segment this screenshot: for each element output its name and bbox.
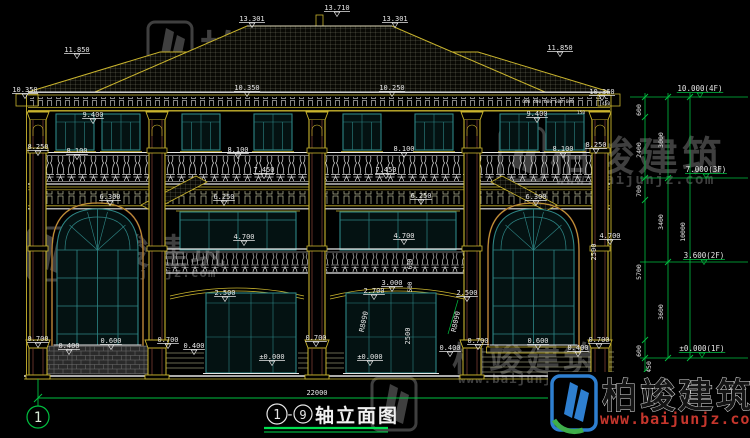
- dim-label: 0.600: [527, 337, 548, 345]
- dim-label: 2400: [635, 142, 643, 158]
- dim-label: 6.300: [525, 193, 546, 201]
- dim-label: 0.400: [567, 344, 588, 352]
- dim-label: 8.100: [393, 145, 414, 153]
- dim-label: 11.850: [64, 46, 89, 54]
- dim-label: 700: [635, 185, 643, 197]
- dim-label: 10.360: [589, 88, 614, 96]
- dim-label: 450: [602, 101, 610, 107]
- dim-label: 2500: [404, 328, 412, 345]
- page-title: 轴立面图: [315, 404, 399, 427]
- dim-label: 7.000(3F): [686, 165, 727, 174]
- dim-label: 7.450: [253, 166, 274, 174]
- roof: [28, 15, 610, 92]
- dim-label: 6.300: [99, 193, 120, 201]
- dim-label: 8.100: [66, 147, 87, 155]
- grid-bubble-left-label: 1: [34, 410, 42, 426]
- dim-label: 2500: [590, 244, 598, 261]
- dim-label: 150: [577, 110, 585, 116]
- dim-label: 3.600(2F): [684, 251, 725, 260]
- dim-label: ±0.000(1F): [679, 344, 724, 353]
- dim-label: 0.400: [439, 344, 460, 352]
- roof-finial: [316, 15, 323, 26]
- dim-label: 13.301: [382, 15, 407, 23]
- dim-label: 7.450: [375, 166, 396, 174]
- dim-label: 9.400: [526, 110, 547, 118]
- dim-label: 10.000(4F): [677, 84, 722, 93]
- dim-label: 2.500: [456, 289, 477, 297]
- dim-label: 0.400: [58, 342, 79, 350]
- dim-label: 600: [635, 345, 643, 357]
- dim-label: 10000: [679, 222, 687, 242]
- dim-label: 0.700: [588, 336, 609, 344]
- dim-label: 600 600 600 600 600: [522, 99, 574, 105]
- dim-label: 0.700: [467, 337, 488, 345]
- dim-label: 13.710: [324, 4, 349, 12]
- dim-label: 450: [645, 361, 653, 373]
- level-flag: [183, 350, 205, 355]
- dim-label: ±0.000: [259, 353, 284, 361]
- elevation-drawing: 柏竣建筑 www.baijunjz.com 柏竣建筑 www.baijunjz.…: [0, 0, 750, 438]
- dim-label: 6.250: [213, 193, 234, 201]
- dim-label: 13.301: [239, 15, 264, 23]
- dim-label: 8.250: [585, 141, 606, 149]
- dim-label: 600: [407, 258, 414, 269]
- arched-window-right: [487, 203, 581, 353]
- dim-label: 4.700: [599, 232, 620, 240]
- dim-label: 22000: [306, 389, 327, 397]
- level-flag: [324, 12, 350, 17]
- dim-label: ±0.000: [357, 353, 382, 361]
- watermark-color-bottom-right: 柏竣建筑 www.baijunjz.com: [548, 372, 750, 436]
- level-flag: [547, 52, 573, 57]
- title-dash: -: [286, 407, 294, 423]
- dim-label: 2.700: [363, 287, 384, 295]
- dim-label: 4.700: [393, 232, 414, 240]
- dim-label: 0.700: [305, 334, 326, 342]
- dim-label: 0.700: [157, 336, 178, 344]
- dim-label: 4.700: [233, 233, 254, 241]
- dim-label: 10.250: [379, 84, 404, 92]
- dim-label: 8.250: [27, 143, 48, 151]
- dim-label: 600: [635, 104, 643, 116]
- watermark-url: www.baijunjz.com: [600, 410, 750, 428]
- dim-label: R8090: [450, 310, 462, 332]
- dim-label: 0.700: [27, 335, 48, 343]
- dim-label: 3000: [657, 132, 665, 148]
- dim-label: 3.000: [381, 279, 402, 287]
- dim-label: 2.500: [214, 289, 235, 297]
- dim-label: 0.400: [183, 342, 204, 350]
- arched-window-left: [51, 203, 145, 353]
- dim-label: 9.400: [82, 111, 103, 119]
- title-block: 1 - 9 轴立面图: [264, 404, 399, 432]
- grid-bubble-left: 1: [27, 406, 49, 428]
- title-axis-end: 9: [299, 408, 306, 422]
- dim-label: 6.250: [410, 192, 431, 200]
- dim-label: 3400: [657, 214, 665, 230]
- dim-label: 8.100: [227, 146, 248, 154]
- dim-label: 500: [407, 281, 414, 292]
- title-axis-start: 1: [273, 408, 281, 423]
- level-flag: [64, 54, 90, 59]
- dim-label: 11.850: [547, 44, 572, 52]
- dim-label: 0.600: [100, 337, 121, 345]
- dim-label: 10.350: [234, 84, 259, 92]
- dim-label: 8.100: [552, 145, 573, 153]
- stone-base: [46, 346, 149, 374]
- level-flag: [679, 353, 726, 358]
- dim-label: 3600: [657, 304, 665, 320]
- dim-label: 5700: [635, 264, 643, 280]
- dim-label: 10.350: [12, 86, 37, 94]
